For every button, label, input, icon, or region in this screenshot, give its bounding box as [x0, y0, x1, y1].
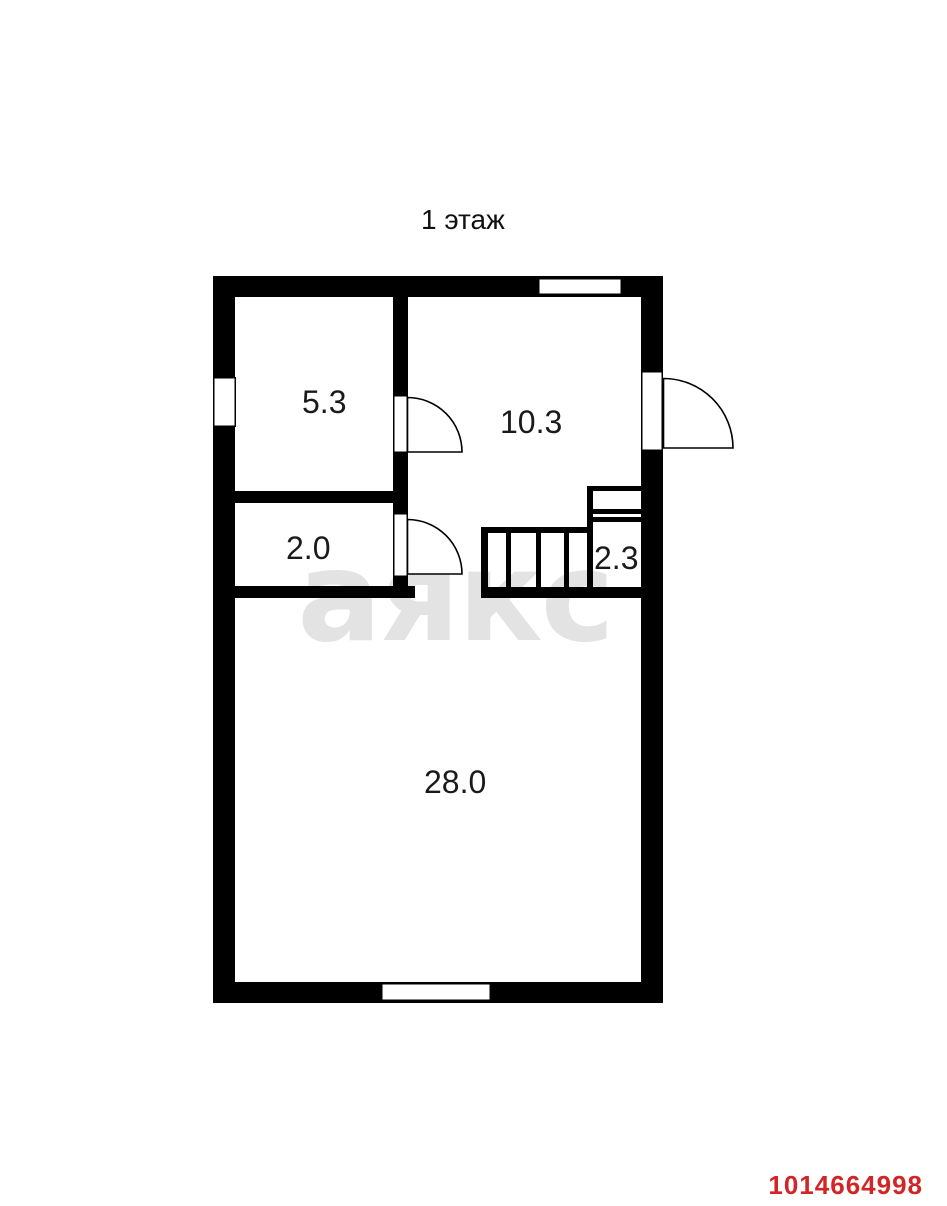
room-5-3-door-frame — [394, 396, 408, 453]
room-area-label-10-3: 10.3 — [500, 406, 562, 438]
floor-plan-page: 1 этаж аякс — [0, 0, 947, 1206]
stair-tread-3 — [564, 531, 569, 589]
room-5-3-door-swing — [408, 398, 463, 453]
stair-upper-tread-1 — [592, 509, 643, 514]
window-bottom-wall — [382, 984, 491, 1001]
wall-bottom-of-2-0 — [230, 586, 415, 598]
wall-right-lower — [641, 451, 663, 1003]
room-area-label-2-0: 2.0 — [286, 532, 330, 564]
stair-tread-2 — [536, 531, 541, 589]
stair-left-edge — [481, 527, 488, 598]
window-left-wall — [214, 378, 236, 427]
wall-interior-vertical-middle — [393, 452, 408, 514]
room-2-0-door-frame — [394, 514, 408, 577]
entry-door-swing — [664, 379, 734, 449]
floor-plan-svg: аякс — [0, 0, 947, 1206]
stair-upper-tread-2 — [592, 517, 643, 522]
stair-divider — [587, 486, 593, 598]
room-area-label-2-3: 2.3 — [594, 542, 638, 574]
wall-divider-5-3-2-0 — [230, 491, 396, 503]
wall-interior-vertical-upper — [393, 294, 408, 396]
window-top-wall — [539, 279, 622, 295]
listing-id: 1014664998 — [768, 1172, 923, 1198]
stair-upper-top-edge — [587, 486, 643, 491]
wall-right-upper — [641, 276, 663, 371]
room-area-label-28-0: 28.0 — [424, 766, 486, 798]
entry-door-frame — [642, 372, 663, 451]
stair-tread-1 — [506, 531, 511, 589]
stair-bottom-rail — [481, 587, 642, 598]
room-area-label-5-3: 5.3 — [302, 386, 346, 418]
